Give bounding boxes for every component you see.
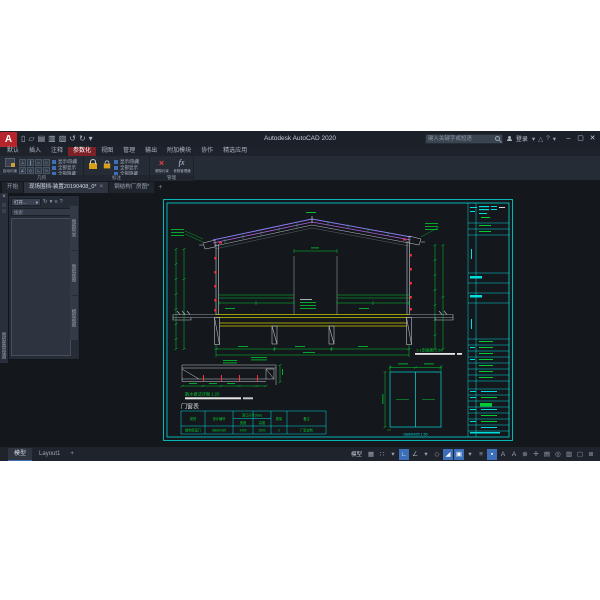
fx-icon: fx bbox=[179, 158, 185, 168]
constraint-icon-0[interactable]: ⊥ bbox=[19, 159, 26, 166]
svg-text:洞口尺寸(mm): 洞口尺寸(mm) bbox=[242, 413, 262, 418]
ribbon-tab-1[interactable]: 插入 bbox=[24, 147, 46, 156]
annotation-scale-icon[interactable]: ⊕ bbox=[520, 449, 530, 460]
lock-icon bbox=[104, 164, 110, 169]
palette-tab-0[interactable]: 图纸列表 bbox=[70, 206, 78, 250]
osnap-dropdown-icon[interactable]: ▾ bbox=[465, 449, 475, 460]
sheet-set-dropdown[interactable]: 打开...▾ bbox=[11, 198, 41, 206]
palette-properties-icon[interactable] bbox=[2, 209, 6, 213]
interior-structure bbox=[219, 248, 409, 316]
dyn-show-hide-icon bbox=[114, 160, 118, 164]
help-icon[interactable]: ? bbox=[546, 135, 550, 143]
constraint-icon-4[interactable]: ∠ bbox=[19, 167, 26, 174]
svg-text:2400: 2400 bbox=[239, 429, 246, 433]
detail-title: 散水做法详图 1:20 bbox=[185, 391, 220, 398]
isolate-objects-icon[interactable]: ◎ bbox=[553, 449, 563, 460]
polar-dropdown-icon[interactable]: ▾ bbox=[421, 449, 431, 460]
help-icon[interactable]: ? bbox=[60, 198, 63, 206]
svg-text:1-1剖面图 1:50: 1-1剖面图 1:50 bbox=[416, 347, 443, 353]
palette-search-box[interactable] bbox=[11, 208, 71, 216]
columns bbox=[216, 241, 410, 315]
polar-icon[interactable]: ∠ bbox=[410, 449, 420, 460]
letterbox-bottom bbox=[0, 461, 600, 600]
cad-sheet[interactable]: 1-1剖面图 1:50 bbox=[163, 199, 513, 441]
auto-constrain-button[interactable]: 自动约束 bbox=[2, 158, 17, 175]
ribbon-tab-7[interactable]: 附加模块 bbox=[162, 147, 196, 156]
palette-title-strip: × 图纸集管理器 bbox=[0, 193, 8, 363]
details-icon[interactable]: ≡ bbox=[54, 198, 57, 206]
column-red-marks bbox=[214, 239, 411, 312]
constraint-icon-5[interactable]: ◇ bbox=[27, 167, 34, 174]
file-tab-2[interactable]: 钢结构厂房图* bbox=[109, 182, 154, 193]
svg-text:宽度: 宽度 bbox=[240, 420, 247, 425]
constraint-icon-6[interactable]: ∟ bbox=[35, 167, 42, 174]
palette-side-title: 图纸集管理器 bbox=[1, 332, 7, 359]
svg-text:2500: 2500 bbox=[258, 429, 265, 433]
snap-dropdown-icon[interactable]: ▾ bbox=[388, 449, 398, 460]
status-bar: 模型Layout1+ 模型 ▦∷▾∟∠▾◇◢▣▾≡▪AA⊕✛▤◎▥▢≣ bbox=[0, 447, 600, 461]
door-label: GBM2425 1:50 bbox=[403, 433, 427, 437]
drawing-area: × 图纸集管理器 打开...▾ ↻▾≡? 图纸列表图纸视图模型视图 bbox=[0, 193, 600, 447]
autocad-window: A ▯▱▤▥▨↺↻▾ Autodesk AutoCAD 2020 登录 ▾△?▾… bbox=[0, 131, 600, 461]
ribbon-tab-3[interactable]: 参数化 bbox=[68, 147, 96, 156]
svg-text:高度: 高度 bbox=[259, 420, 266, 425]
ribbon-panel-manage: × 删除约束 fx 参数管理器 管理 bbox=[150, 156, 194, 181]
autocad-logo-icon[interactable]: A bbox=[0, 132, 17, 147]
sign-in-person-icon[interactable] bbox=[507, 136, 512, 141]
redo-icon[interactable]: ↻ bbox=[79, 134, 86, 144]
palette-search-input[interactable] bbox=[12, 210, 70, 215]
svg-text:备注: 备注 bbox=[303, 416, 310, 421]
new-layout-button[interactable]: + bbox=[67, 448, 77, 461]
grid-icon[interactable]: ▦ bbox=[366, 449, 376, 460]
constraint-icon-1[interactable]: ∥ bbox=[27, 159, 34, 166]
lock-icon bbox=[89, 163, 97, 169]
show-all-icon bbox=[52, 166, 56, 170]
model-space-label[interactable]: 模型 bbox=[348, 450, 365, 458]
ribbon-tab-8[interactable]: 协作 bbox=[196, 147, 218, 156]
show-all-button[interactable]: 全部显示 bbox=[52, 165, 77, 170]
constraint-icon-3[interactable]: ○ bbox=[43, 159, 50, 166]
plot-icon[interactable]: ▨ bbox=[59, 134, 67, 144]
isodraft-icon[interactable]: ◇ bbox=[432, 449, 442, 460]
sign-in-label[interactable]: 登录 bbox=[516, 134, 528, 143]
svg-text:钢制保温门: 钢制保温门 bbox=[185, 428, 201, 433]
layout-tab-Layout1[interactable]: Layout1 bbox=[33, 448, 66, 461]
layout-tab-bar: 模型Layout1+ bbox=[0, 447, 77, 461]
ribbon-tab-2[interactable]: 注释 bbox=[46, 147, 68, 156]
customization-icon[interactable]: ≣ bbox=[586, 449, 596, 460]
maximize-button[interactable]: ▢ bbox=[575, 133, 586, 144]
ortho-icon[interactable]: ∟ bbox=[399, 449, 409, 460]
alert-icon[interactable]: △ bbox=[538, 135, 543, 143]
svg-text:厂家定制: 厂家定制 bbox=[300, 428, 313, 433]
list-dropdown-icon[interactable]: ▾ bbox=[50, 198, 53, 206]
dynamic-input-icon[interactable]: ▪ bbox=[487, 449, 497, 460]
dim-constraint-button-2[interactable] bbox=[102, 158, 112, 169]
ribbon: 自动约束 ⊥∥=○∠◇∟≈ 显示/隐藏 全部显示 全部隐藏 几何 bbox=[0, 156, 600, 181]
search-icon[interactable] bbox=[495, 136, 500, 141]
delete-constraints-button[interactable]: × 删除约束 bbox=[153, 158, 171, 174]
file-tab-close-icon[interactable]: × bbox=[100, 182, 104, 193]
undo-icon[interactable]: ↺ bbox=[69, 134, 76, 144]
open-icon[interactable]: ▱ bbox=[28, 134, 34, 144]
parameters-manager-button[interactable]: fx 参数管理器 bbox=[173, 158, 191, 174]
layout-tab-模型[interactable]: 模型 bbox=[8, 448, 32, 461]
ribbon-tab-6[interactable]: 输出 bbox=[140, 147, 162, 156]
file-tab-bar: 开始现场围挡-装置20190408_0*×钢结构厂房图*+ bbox=[0, 181, 600, 193]
section-bottom-dims bbox=[215, 345, 411, 357]
save-icon[interactable]: ▤ bbox=[38, 134, 46, 144]
close-button[interactable]: ✕ bbox=[587, 133, 598, 144]
svg-text:数量: 数量 bbox=[276, 416, 283, 421]
annotation-autoscale-icon[interactable]: A bbox=[509, 449, 519, 460]
dimension-chains bbox=[175, 244, 445, 350]
foundation-piers bbox=[173, 311, 453, 345]
dim-constraint-button[interactable] bbox=[86, 158, 100, 169]
delete-constraints-icon: × bbox=[159, 158, 164, 168]
save-as-icon[interactable]: ▥ bbox=[48, 134, 56, 144]
palette-tab-2[interactable]: 模型视图 bbox=[70, 296, 78, 340]
title-strip bbox=[468, 203, 509, 437]
dyn-show-hide-button[interactable]: 显示/隐藏 bbox=[114, 159, 139, 164]
svg-text:设计编号: 设计编号 bbox=[213, 416, 226, 421]
help-search-input[interactable] bbox=[428, 135, 494, 143]
file-tab-1[interactable]: 现场围挡-装置20190408_0*× bbox=[24, 182, 108, 193]
help-search-box[interactable] bbox=[425, 134, 503, 144]
new-drawing-tab-button[interactable]: + bbox=[155, 182, 165, 193]
clean-screen-icon[interactable]: ▢ bbox=[575, 449, 585, 460]
door-window-table: 门窗表 类别 设计编号 洞口尺寸(mm) 宽度 高度 数量 备 bbox=[181, 403, 326, 435]
new-icon[interactable]: ▯ bbox=[21, 134, 25, 144]
ribbon-tab-9[interactable]: 精选应用 bbox=[218, 147, 252, 156]
minimize-button[interactable]: – bbox=[563, 133, 574, 144]
title-strip-text-marks bbox=[470, 206, 505, 434]
constraint-icon-2[interactable]: = bbox=[35, 159, 42, 166]
refresh-icon[interactable]: ↻ bbox=[43, 198, 48, 206]
osnap-track-icon[interactable]: ◢ bbox=[443, 449, 453, 460]
auto-constrain-icon bbox=[5, 158, 15, 167]
show-hide-button[interactable]: 显示/隐藏 bbox=[52, 159, 77, 164]
workspace-icon[interactable]: ✛ bbox=[531, 449, 541, 460]
svg-text:类别: 类别 bbox=[190, 416, 196, 421]
sheet-list-panel[interactable] bbox=[11, 218, 71, 356]
dyn-show-all-button[interactable]: 全部显示 bbox=[114, 165, 139, 170]
palette-autohide-icon[interactable] bbox=[2, 203, 6, 207]
sheet-set-palette: 打开...▾ ↻▾≡? 图纸列表图纸视图模型视图 bbox=[8, 195, 80, 360]
table-title: 门窗表 bbox=[181, 403, 199, 411]
title-bar: A ▯▱▤▥▨↺↻▾ Autodesk AutoCAD 2020 登录 ▾△?▾… bbox=[0, 131, 600, 147]
lineweight-icon[interactable]: ≡ bbox=[476, 449, 486, 460]
ribbon-tab-5[interactable]: 管理 bbox=[118, 147, 140, 156]
constraint-icon-7[interactable]: ≈ bbox=[43, 167, 50, 174]
ribbon-panel-geometric: 自动约束 ⊥∥=○∠◇∟≈ 显示/隐藏 全部显示 全部隐藏 几何 bbox=[0, 156, 84, 181]
palette-tab-1[interactable]: 图纸视图 bbox=[70, 251, 78, 295]
help-dropdown-icon[interactable]: ▾ bbox=[553, 135, 556, 143]
svg-text:2: 2 bbox=[278, 429, 280, 433]
eave-annotations bbox=[171, 223, 439, 242]
screenshot-root: A ▯▱▤▥▨↺↻▾ Autodesk AutoCAD 2020 登录 ▾△?▾… bbox=[0, 0, 600, 600]
ribbon-tab-0[interactable]: 默认 bbox=[2, 147, 24, 156]
constraint-icon-grid: ⊥∥=○∠◇∟≈ bbox=[19, 158, 50, 174]
sheet-border bbox=[164, 200, 513, 441]
annotation-visibility-icon[interactable]: A bbox=[498, 449, 508, 460]
keep-list-dropdown-icon[interactable]: ▾ bbox=[532, 135, 535, 143]
letterbox-top bbox=[0, 0, 600, 131]
quick-access-toolbar: ▯▱▤▥▨↺↻▾ bbox=[21, 134, 93, 144]
dyn-show-all-icon bbox=[114, 166, 118, 170]
osnap-icon[interactable]: ▣ bbox=[454, 449, 464, 460]
quick-properties-icon[interactable]: ▤ bbox=[542, 449, 552, 460]
apron-detail: 散水做法详图 1:20 bbox=[181, 357, 283, 399]
palette-close-icon[interactable]: × bbox=[2, 194, 6, 201]
qat-dropdown-icon[interactable]: ▾ bbox=[89, 134, 93, 144]
status-toggle-icons: 模型 ▦∷▾∟∠▾◇◢▣▾≡▪AA⊕✛▤◎▥▢≣ bbox=[348, 449, 600, 460]
ribbon-tab-4[interactable]: 视图 bbox=[96, 147, 118, 156]
roof-lines bbox=[213, 216, 411, 249]
ribbon-panel-dimensional: 显示/隐藏 全部显示 全部隐藏 标注 bbox=[84, 156, 150, 181]
door-elevation: GBM2425 1:50 bbox=[383, 364, 443, 437]
snap-icon[interactable]: ∷ bbox=[377, 449, 387, 460]
file-tab-0[interactable]: 开始 bbox=[2, 182, 23, 193]
section-title: 1-1剖面图 1:50 bbox=[415, 347, 462, 355]
show-hide-icon bbox=[52, 160, 56, 164]
palette-tab-strip: 图纸列表图纸视图模型视图 bbox=[70, 206, 78, 340]
svg-text:GBM2425: GBM2425 bbox=[212, 429, 227, 433]
graphics-performance-icon[interactable]: ▥ bbox=[564, 449, 574, 460]
ribbon-tab-bar: 默认插入注释参数化视图管理输出附加模块协作精选应用 bbox=[0, 147, 600, 156]
